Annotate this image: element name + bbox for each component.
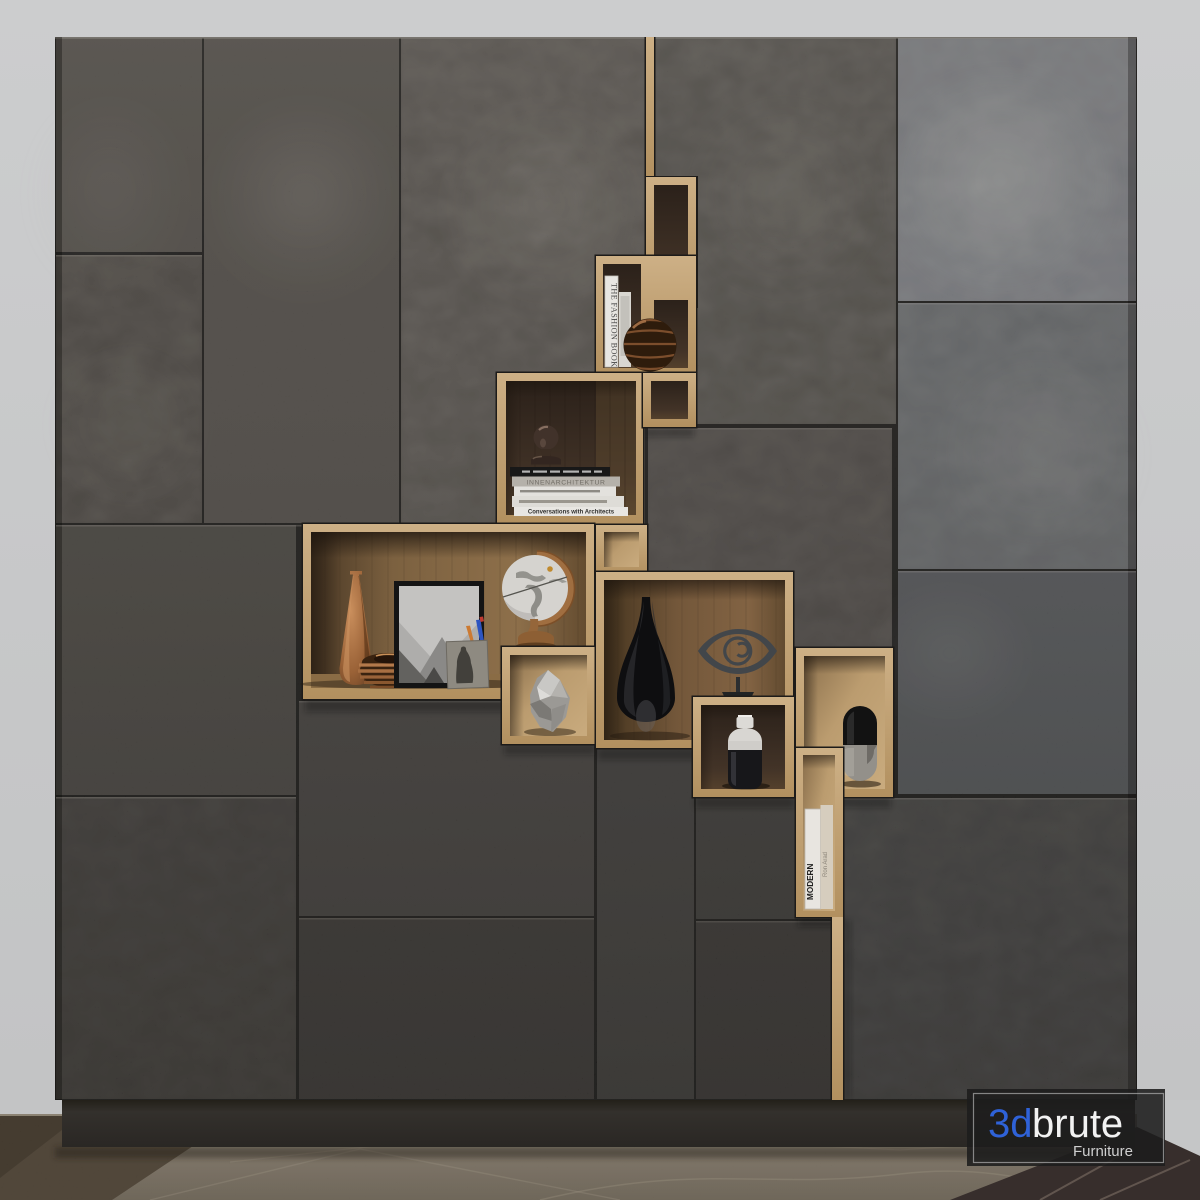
svg-text:Ron Arad: Ron Arad	[823, 852, 829, 877]
svg-text:INNENARCHITEKTUR: INNENARCHITEKTUR	[526, 480, 605, 487]
svg-text:Furniture: Furniture	[1073, 1143, 1133, 1160]
svg-text:MODERN: MODERN	[806, 864, 815, 900]
svg-text:3d: 3d	[988, 1102, 1033, 1146]
svg-text:Conversations with Architects: Conversations with Architects	[528, 510, 615, 516]
svg-text:brute: brute	[1032, 1102, 1123, 1146]
svg-text:THE FASHION BOOK: THE FASHION BOOK	[610, 283, 619, 367]
